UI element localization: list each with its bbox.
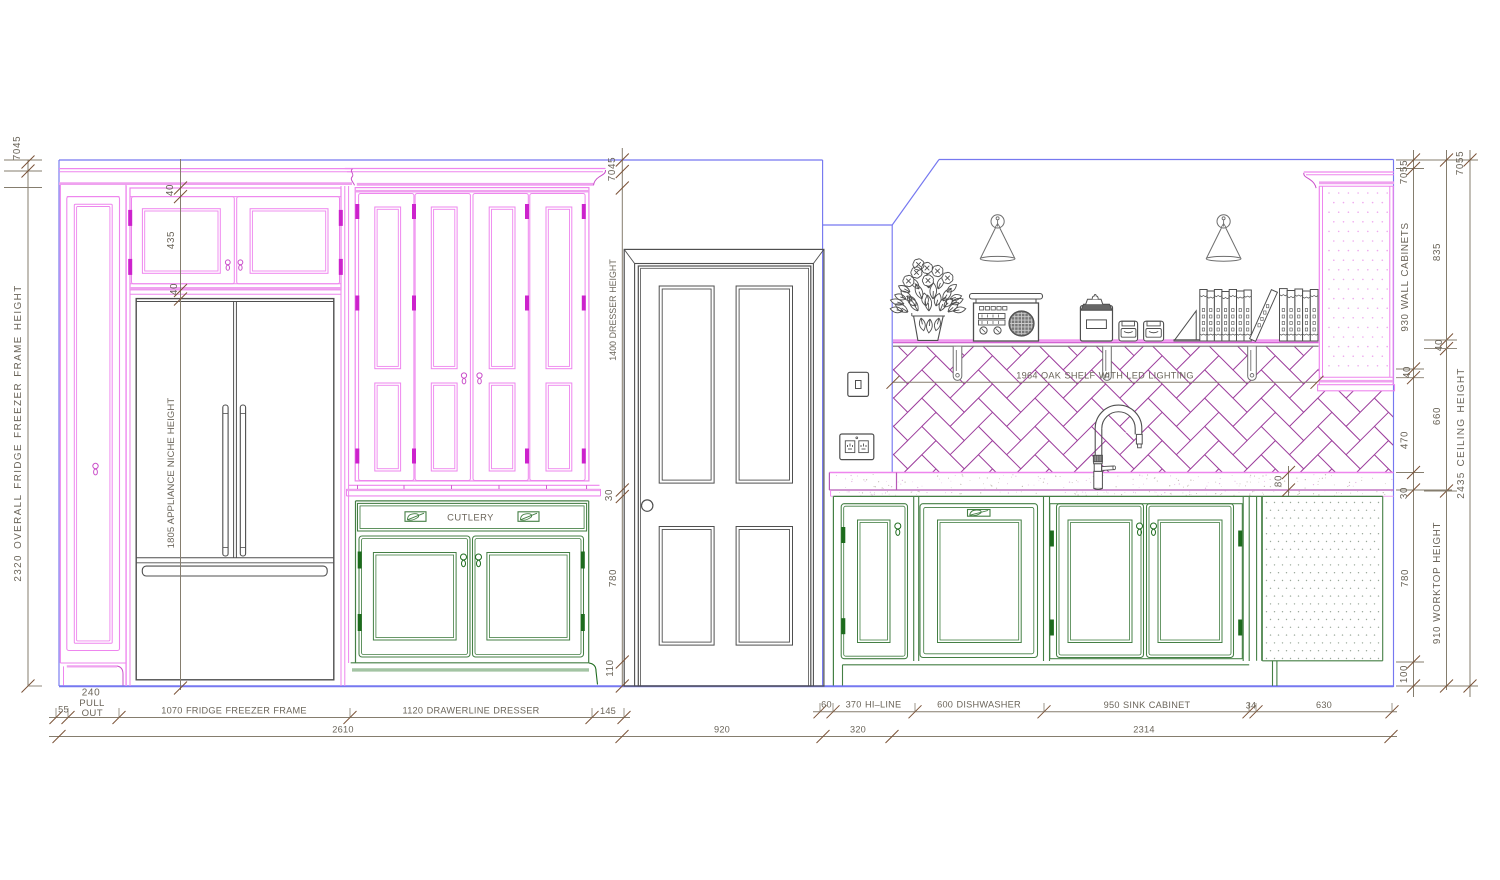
svg-text:OUT: OUT	[82, 708, 103, 719]
svg-text:1805 APPLIANCE NICHE HEIGHT: 1805 APPLIANCE NICHE HEIGHT	[166, 398, 177, 549]
svg-text:930 WALL CABINETS: 930 WALL CABINETS	[1400, 222, 1411, 331]
svg-text:660: 660	[1432, 407, 1443, 425]
svg-text:40: 40	[1402, 366, 1413, 378]
svg-text:60: 60	[821, 699, 832, 709]
svg-text:110: 110	[605, 659, 616, 677]
svg-text:CUTLERY: CUTLERY	[447, 511, 494, 522]
svg-text:2610: 2610	[332, 725, 353, 735]
svg-text:2435 CEILING HEIGHT: 2435 CEILING HEIGHT	[1456, 367, 1467, 498]
svg-text:1400 DRESSER HEIGHT: 1400 DRESSER HEIGHT	[608, 259, 618, 361]
svg-text:100: 100	[1399, 665, 1410, 683]
svg-text:2320 OVERALL FRIDGE FREEZER: 2320 OVERALL FRIDGE FREEZER FRAME HEIGHT	[13, 284, 24, 581]
svg-text:780: 780	[608, 569, 619, 587]
svg-text:7055: 7055	[1399, 160, 1410, 184]
svg-text:600 DISHWASHER: 600 DISHWASHER	[937, 699, 1021, 709]
svg-text:55: 55	[58, 705, 69, 715]
svg-text:780: 780	[1400, 569, 1411, 587]
svg-text:7045: 7045	[12, 136, 23, 160]
svg-text:320: 320	[850, 725, 866, 735]
svg-text:1070 FRIDGE FREEZER FRAME: 1070 FRIDGE FREEZER FRAME	[161, 706, 307, 716]
svg-text:80: 80	[1274, 475, 1285, 487]
svg-text:30: 30	[1399, 487, 1410, 499]
svg-text:7045: 7045	[607, 157, 618, 181]
svg-text:370 HI–LINE: 370 HI–LINE	[846, 699, 902, 709]
svg-text:40: 40	[169, 283, 180, 295]
svg-text:2314: 2314	[1133, 725, 1154, 735]
svg-text:910 WORKTOP HEIGHT: 910 WORKTOP HEIGHT	[1432, 522, 1443, 644]
svg-text:145: 145	[600, 706, 616, 716]
svg-text:40: 40	[1434, 339, 1445, 351]
svg-text:34: 34	[1246, 701, 1257, 711]
svg-text:30: 30	[604, 489, 615, 501]
svg-text:920: 920	[714, 725, 730, 735]
svg-text:630: 630	[1316, 700, 1332, 710]
svg-text:470: 470	[1400, 431, 1411, 449]
svg-text:1964 OAK SHELF WITH LED L: 1964 OAK SHELF WITH LED LIGHTING	[1016, 371, 1193, 381]
svg-text:7055: 7055	[1455, 151, 1466, 175]
svg-text:40: 40	[165, 184, 176, 196]
svg-text:835: 835	[1432, 243, 1443, 261]
svg-text:1120 DRAWERLINE DRESSER: 1120 DRAWERLINE DRESSER	[403, 706, 540, 716]
svg-text:435: 435	[166, 231, 177, 249]
svg-text:950 SINK CABINET: 950 SINK CABINET	[1104, 700, 1191, 710]
